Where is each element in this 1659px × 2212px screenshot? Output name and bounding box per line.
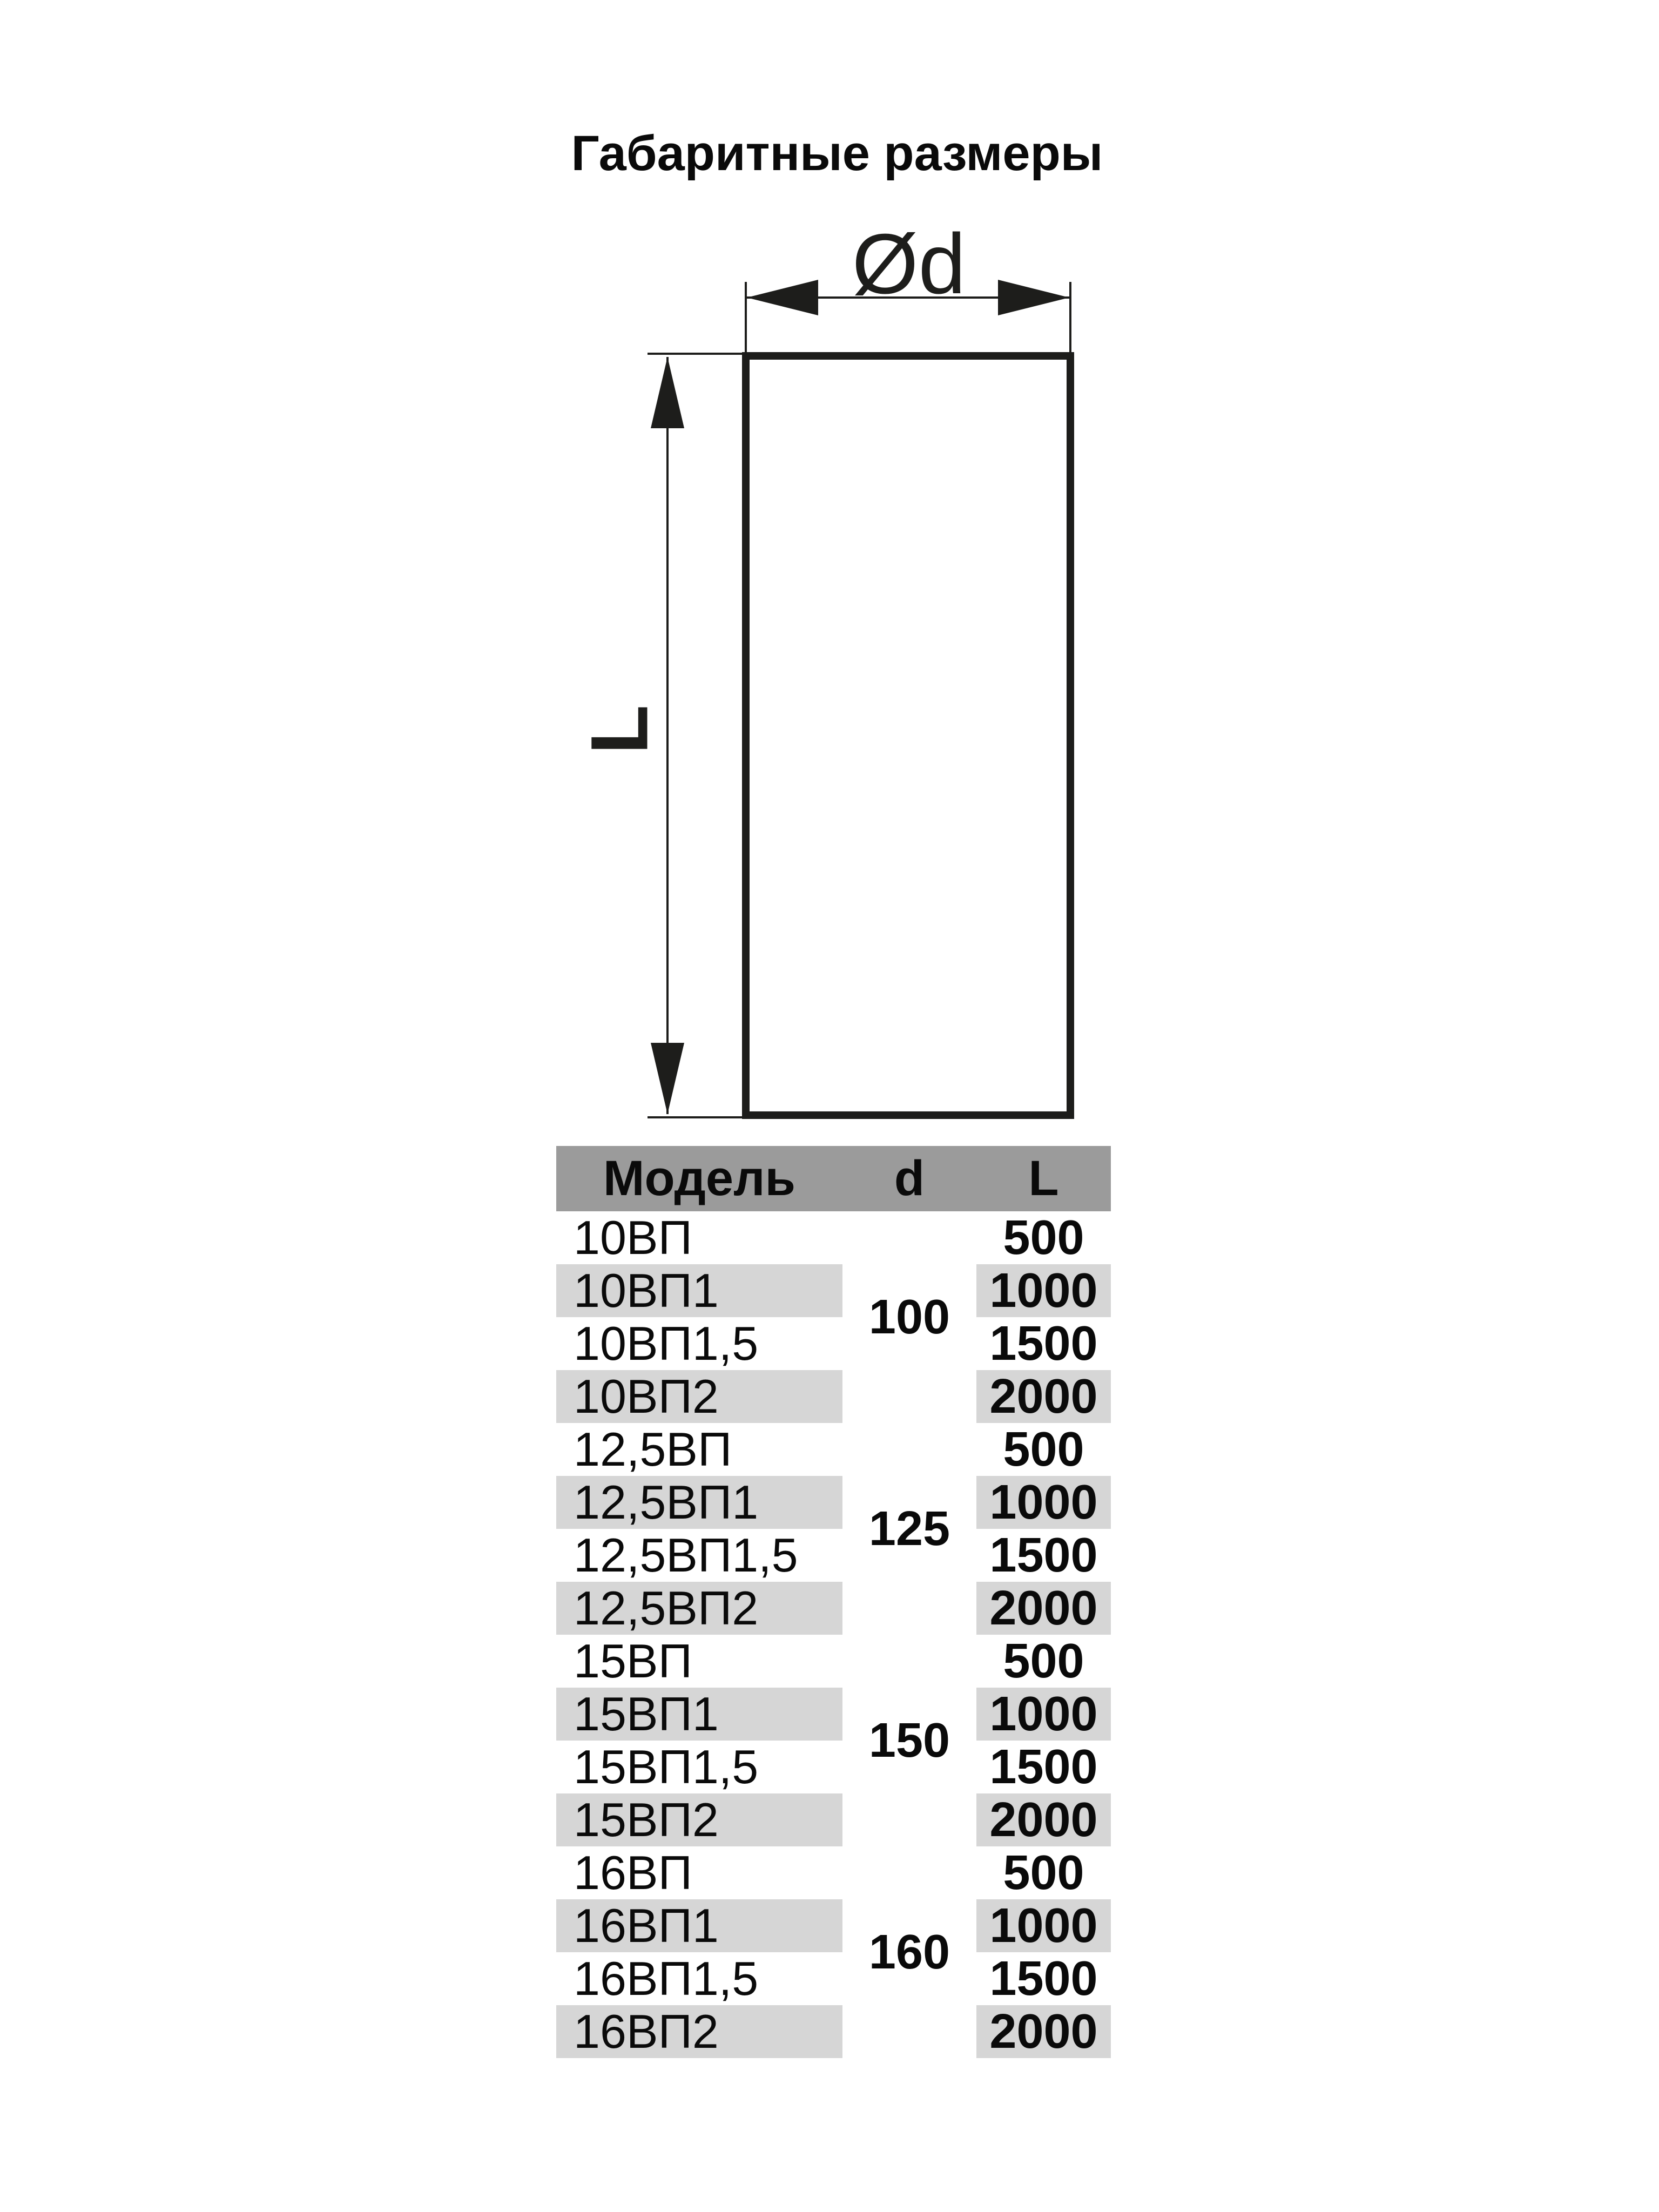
d-merged-cell: 160 xyxy=(842,1846,976,2058)
model-cell: 10ВП xyxy=(556,1211,842,1264)
model-value: 10ВП xyxy=(574,1210,692,1265)
model-value: 15ВП xyxy=(574,1634,692,1689)
length-dimension-label: L xyxy=(574,705,665,754)
model-value: 16ВП xyxy=(574,1845,692,1900)
table-row: 15ВП2 2000 xyxy=(556,1793,1111,1846)
length-value: 2000 xyxy=(989,1792,1097,1848)
model-value: 10ВП1,5 xyxy=(574,1316,758,1371)
length-cell: 1000 xyxy=(976,1899,1111,1952)
length-value: 1000 xyxy=(989,1898,1097,1954)
table-row: 15ВП1,5 1500 xyxy=(556,1741,1111,1793)
table-row: 15ВП1 1000 xyxy=(556,1688,1111,1741)
model-cell: 16ВП xyxy=(556,1846,842,1899)
model-value: 10ВП1 xyxy=(574,1263,719,1318)
model-cell: 16ВП1,5 xyxy=(556,1952,842,2005)
length-arrowhead-top xyxy=(651,357,684,428)
model-value: 12,5ВП1 xyxy=(574,1475,758,1530)
table-header-row: Модель d L xyxy=(556,1146,1111,1211)
length-value: 1000 xyxy=(989,1687,1097,1742)
diameter-arrowhead-right xyxy=(998,280,1069,315)
model-cell: 15ВП2 xyxy=(556,1793,842,1846)
table-rows: 10ВП 500 10ВП1 1000 10ВП1,5 1500 10ВП2 2… xyxy=(556,1211,1111,2058)
length-value: 1500 xyxy=(989,1316,1097,1372)
d-merged-cell: 100 xyxy=(842,1211,976,1423)
header-cell-l: L xyxy=(976,1146,1111,1211)
model-cell: 15ВП xyxy=(556,1635,842,1688)
table-row: 10ВП1 1000 xyxy=(556,1264,1111,1317)
length-cell: 1500 xyxy=(976,1952,1111,2005)
model-cell: 16ВП2 xyxy=(556,2005,842,2058)
length-value: 1000 xyxy=(989,1475,1097,1530)
table-row: 16ВП 500 xyxy=(556,1846,1111,1899)
d-merged-cell: 125 xyxy=(842,1423,976,1635)
length-cell: 1500 xyxy=(976,1529,1111,1582)
model-value: 10ВП2 xyxy=(574,1369,719,1424)
model-value: 15ВП2 xyxy=(574,1792,719,1847)
length-cell: 1500 xyxy=(976,1741,1111,1793)
table-row: 10ВП 500 xyxy=(556,1211,1111,1264)
model-cell: 12,5ВП2 xyxy=(556,1582,842,1635)
d-merged-cell: 150 xyxy=(842,1635,976,1846)
diameter-arrowhead-left xyxy=(747,280,818,315)
model-value: 12,5ВП2 xyxy=(574,1581,758,1636)
table-row: 12,5ВП1 1000 xyxy=(556,1476,1111,1529)
table-row: 16ВП2 2000 xyxy=(556,2005,1111,2058)
length-cell: 2000 xyxy=(976,1793,1111,1846)
length-cell: 500 xyxy=(976,1423,1111,1476)
length-value: 1000 xyxy=(989,1263,1097,1319)
model-cell: 15ВП1 xyxy=(556,1688,842,1741)
header-cell-model: Модель xyxy=(556,1146,842,1211)
length-cell: 500 xyxy=(976,1635,1111,1688)
length-cell: 500 xyxy=(976,1846,1111,1899)
length-value: 1500 xyxy=(989,1951,1097,2007)
model-cell: 12,5ВП xyxy=(556,1423,842,1476)
table-row: 10ВП1,5 1500 xyxy=(556,1317,1111,1370)
header-label-model: Модель xyxy=(603,1150,795,1207)
model-value: 16ВП1,5 xyxy=(574,1951,758,2006)
model-cell: 10ВП2 xyxy=(556,1370,842,1423)
duct-body-outline xyxy=(746,356,1070,1115)
length-value: 2000 xyxy=(989,2004,1097,2060)
model-value: 15ВП1,5 xyxy=(574,1739,758,1795)
header-label-l: L xyxy=(1028,1150,1058,1207)
header-cell-d: d xyxy=(842,1146,976,1211)
d-value: 160 xyxy=(869,1925,950,1980)
table-row: 12,5ВП 500 xyxy=(556,1423,1111,1476)
length-cell: 2000 xyxy=(976,2005,1111,2058)
length-value: 1500 xyxy=(989,1528,1097,1583)
length-cell: 500 xyxy=(976,1211,1111,1264)
length-value: 500 xyxy=(1003,1210,1084,1266)
header-label-d: d xyxy=(894,1150,925,1207)
spec-sheet-page: { "title": "Габаритные размеры", "diagra… xyxy=(0,0,1659,2212)
length-cell: 2000 xyxy=(976,1582,1111,1635)
model-value: 12,5ВП1,5 xyxy=(574,1528,798,1583)
model-cell: 12,5ВП1,5 xyxy=(556,1529,842,1582)
length-value: 1500 xyxy=(989,1739,1097,1795)
model-cell: 10ВП1,5 xyxy=(556,1317,842,1370)
model-cell: 15ВП1,5 xyxy=(556,1741,842,1793)
table-row: 12,5ВП2 2000 xyxy=(556,1582,1111,1635)
d-column-overlay: 100 125 150 160 xyxy=(842,1211,976,2058)
model-cell: 10ВП1 xyxy=(556,1264,842,1317)
length-value: 500 xyxy=(1003,1845,1084,1901)
table-row: 15ВП 500 xyxy=(556,1635,1111,1688)
length-cell: 1000 xyxy=(976,1264,1111,1317)
d-value: 150 xyxy=(869,1713,950,1769)
table-row: 12,5ВП1,5 1500 xyxy=(556,1529,1111,1582)
length-cell: 1500 xyxy=(976,1317,1111,1370)
model-value: 16ВП1 xyxy=(574,1898,719,1953)
length-value: 2000 xyxy=(989,1581,1097,1636)
d-value: 125 xyxy=(869,1501,950,1557)
table-row: 16ВП1,5 1500 xyxy=(556,1952,1111,2005)
length-cell: 1000 xyxy=(976,1476,1111,1529)
length-value: 500 xyxy=(1003,1634,1084,1689)
model-cell: 16ВП1 xyxy=(556,1899,842,1952)
model-value: 12,5ВП xyxy=(574,1422,732,1477)
length-arrowhead-bottom xyxy=(651,1043,684,1114)
spec-table: Модель d L 10ВП 500 10ВП1 1000 10ВП1,5 xyxy=(556,1146,1111,2058)
length-value: 2000 xyxy=(989,1369,1097,1425)
model-value: 16ВП2 xyxy=(574,2004,719,2059)
model-cell: 12,5ВП1 xyxy=(556,1476,842,1529)
diameter-dimension-label: Ød xyxy=(852,217,966,312)
length-cell: 1000 xyxy=(976,1688,1111,1741)
model-value: 15ВП1 xyxy=(574,1687,719,1742)
length-value: 500 xyxy=(1003,1422,1084,1478)
d-value: 100 xyxy=(869,1290,950,1345)
table-row: 16ВП1 1000 xyxy=(556,1899,1111,1952)
table-row: 10ВП2 2000 xyxy=(556,1370,1111,1423)
length-cell: 2000 xyxy=(976,1370,1111,1423)
